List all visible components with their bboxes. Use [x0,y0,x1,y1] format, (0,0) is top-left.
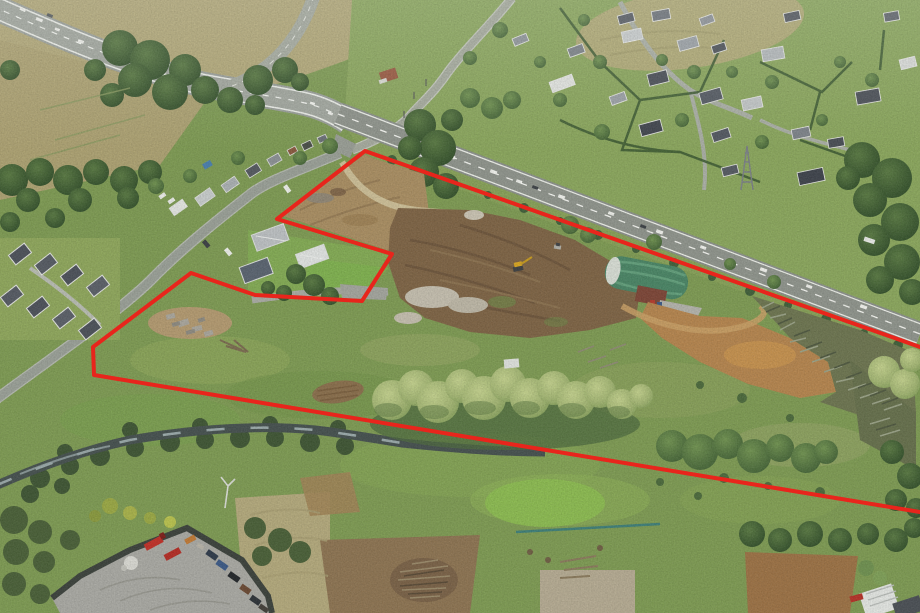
aerial-photo [0,0,920,613]
aerial-photo-canvas [0,0,920,613]
photo-grain-light [0,0,920,613]
